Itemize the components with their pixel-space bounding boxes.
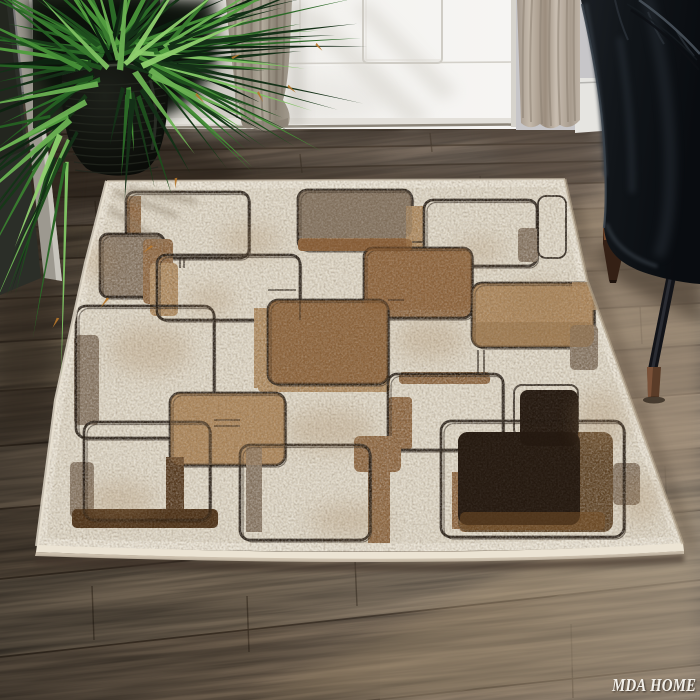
svg-text:MDA HOME: MDA HOME xyxy=(611,675,696,695)
